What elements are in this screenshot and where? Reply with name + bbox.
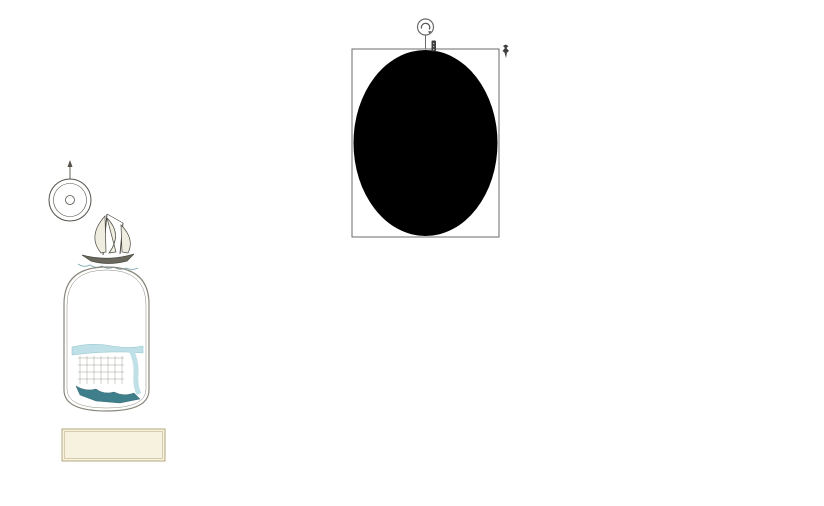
sailing-ship-icon (78, 214, 138, 270)
rotation-handle[interactable] (418, 19, 434, 35)
grip-cursor-icon (432, 41, 437, 52)
annotation-ellipse[interactable] (354, 50, 498, 236)
map-cartouche (49, 160, 165, 461)
compass-rose-icon (49, 160, 91, 221)
map-stage (0, 0, 824, 506)
locator-inset-map (72, 344, 143, 403)
pointer-cursor-icon (503, 45, 510, 59)
map-image (0, 0, 824, 506)
ellipse-annotation (352, 19, 509, 237)
website-box (62, 429, 165, 461)
